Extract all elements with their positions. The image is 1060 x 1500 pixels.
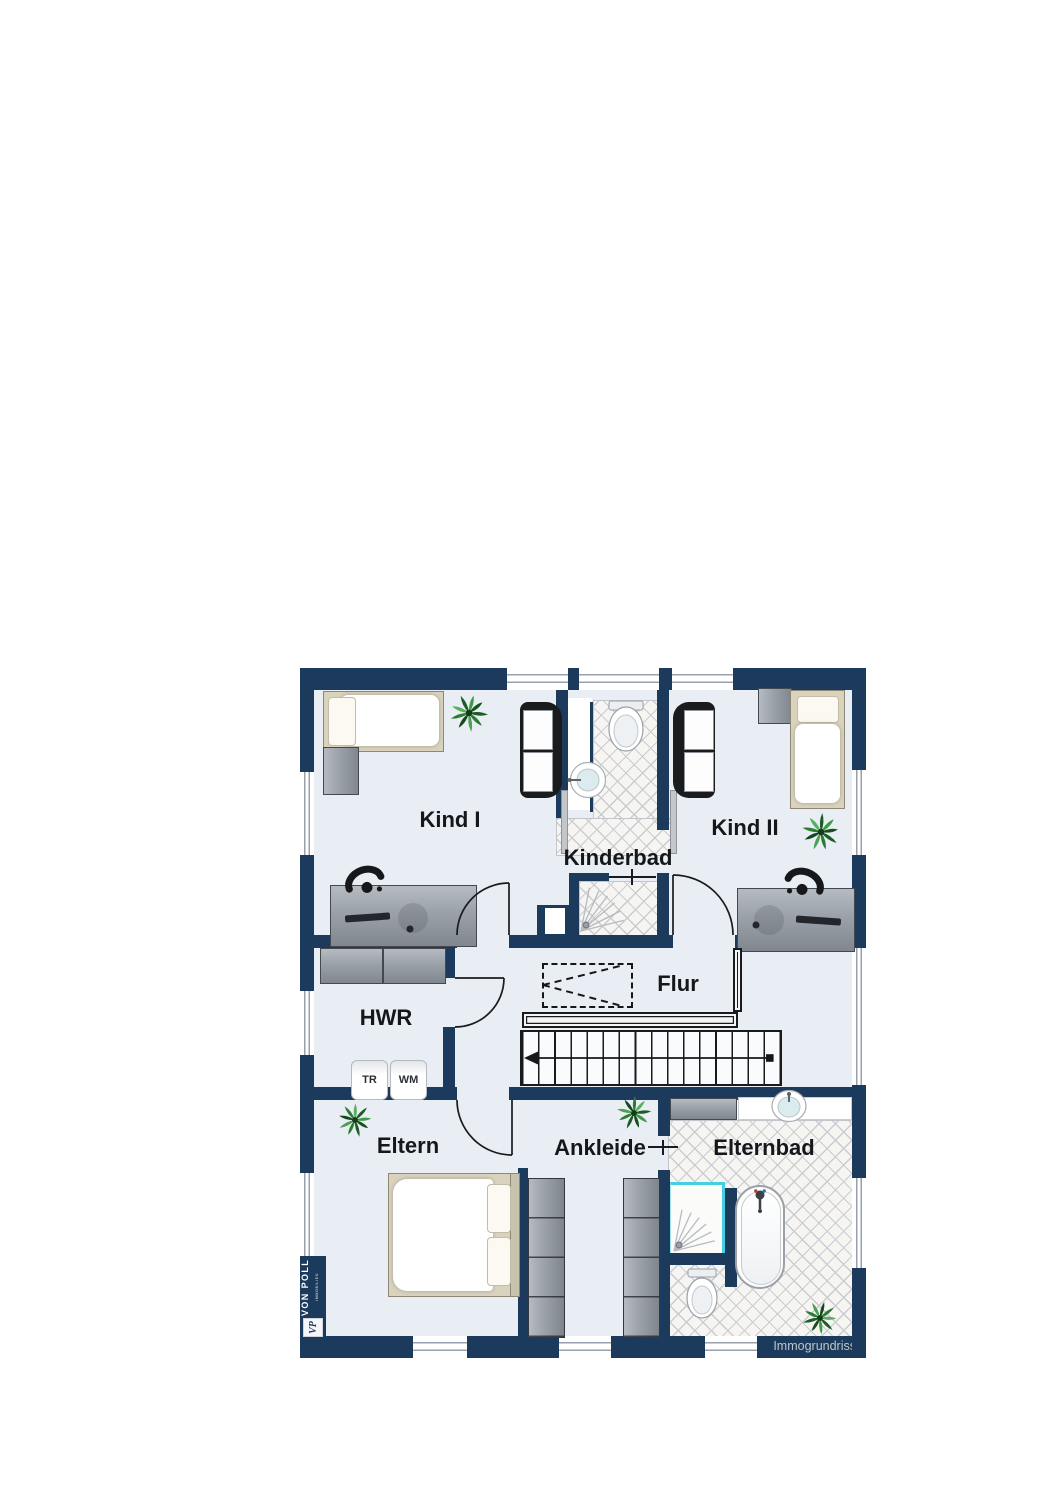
room-label-ankleide: Ankleide <box>554 1135 646 1161</box>
kinderbad-shower-tile <box>579 881 659 937</box>
washer-unit: WM <box>390 1060 427 1100</box>
dresser-kind2 <box>758 688 792 724</box>
bed-eltern <box>388 1173 520 1297</box>
wardrobe-right <box>623 1178 660 1338</box>
sofa-kind2 <box>673 702 715 798</box>
hwr-right-wall-bottom <box>443 1027 455 1087</box>
elternbad-counter <box>738 1097 852 1120</box>
window-right-kind2 <box>852 770 866 855</box>
window-top-kind1 <box>507 668 568 690</box>
bathtub <box>735 1185 785 1289</box>
wardrobe-left <box>528 1178 565 1338</box>
room-label-elternbad: Elternbad <box>713 1135 814 1161</box>
sofa-kind1 <box>520 702 562 798</box>
kinderbad-niche <box>568 698 592 810</box>
bed-kind2 <box>790 690 845 809</box>
window-bottom-elternbad <box>705 1336 757 1358</box>
elternbad-shower-toilet-wall <box>670 1253 732 1265</box>
plant-elternbad-icon <box>800 1298 840 1338</box>
washer-label: WM <box>399 1074 419 1086</box>
desk-kind2 <box>737 888 855 952</box>
room-label-kinderbad: Kinderbad <box>564 845 673 871</box>
dryer-label: TR <box>362 1074 377 1086</box>
window-left-hwr <box>300 991 314 1055</box>
floor-plan: Immogrundriss <box>300 668 866 1358</box>
stair-rail-connector <box>733 948 742 1012</box>
window-right-flur <box>852 948 866 1085</box>
logo-subtitle-text: IMMOBILIEN <box>315 1258 324 1316</box>
floor-plan-page: Immogrundriss <box>0 0 1060 1500</box>
room-label-kind1: Kind I <box>419 807 480 833</box>
window-left-kind1 <box>300 772 314 855</box>
nightstand-kind1 <box>323 747 359 795</box>
stair-handrail <box>522 1012 738 1028</box>
plant-eltern-icon <box>335 1100 375 1140</box>
window-top-kind2 <box>672 668 733 690</box>
kinderbad-right-wall <box>657 690 669 830</box>
logo-monogram-box: VP <box>303 1318 323 1337</box>
plant-kind2-icon <box>799 810 843 854</box>
logo-brand-text: VON POLL <box>300 1258 315 1316</box>
plant-ankleide-icon <box>614 1093 654 1133</box>
room-label-eltern: Eltern <box>377 1133 439 1159</box>
window-left-eltern <box>300 1173 314 1258</box>
duct-niche <box>545 908 565 934</box>
kinderbad-inner-line <box>590 702 593 812</box>
ankleide-elternbad-wall-top <box>658 1100 670 1136</box>
room-label-hwr: HWR <box>360 1005 413 1031</box>
wall-under-kinderbad <box>509 935 673 948</box>
staircase <box>520 1030 782 1086</box>
kinderbad-tile-upper <box>593 700 659 824</box>
window-right-elternbad <box>852 1178 866 1268</box>
watermark-text: Immogrundriss <box>773 1339 856 1353</box>
shower-top-wall <box>569 873 609 881</box>
elternbad-shelf <box>670 1098 737 1120</box>
elternbad-shower <box>670 1182 725 1253</box>
window-bottom-ankleide <box>559 1336 611 1358</box>
plant-kind1-icon <box>447 691 491 735</box>
desk-kind1 <box>330 885 477 947</box>
room-label-flur: Flur <box>657 971 699 997</box>
dryer-unit: TR <box>351 1060 388 1100</box>
window-top-kinderbad <box>579 668 659 690</box>
window-bottom-eltern <box>413 1336 467 1358</box>
von-poll-logo: VON POLL IMMOBILIEN VP <box>300 1256 326 1340</box>
bed-kind1 <box>323 691 444 752</box>
hwr-shelf <box>320 948 446 984</box>
room-label-kind2: Kind II <box>711 815 778 841</box>
logo-monogram-text: VP <box>308 1321 319 1334</box>
headroom-dashed-box <box>542 963 633 1008</box>
